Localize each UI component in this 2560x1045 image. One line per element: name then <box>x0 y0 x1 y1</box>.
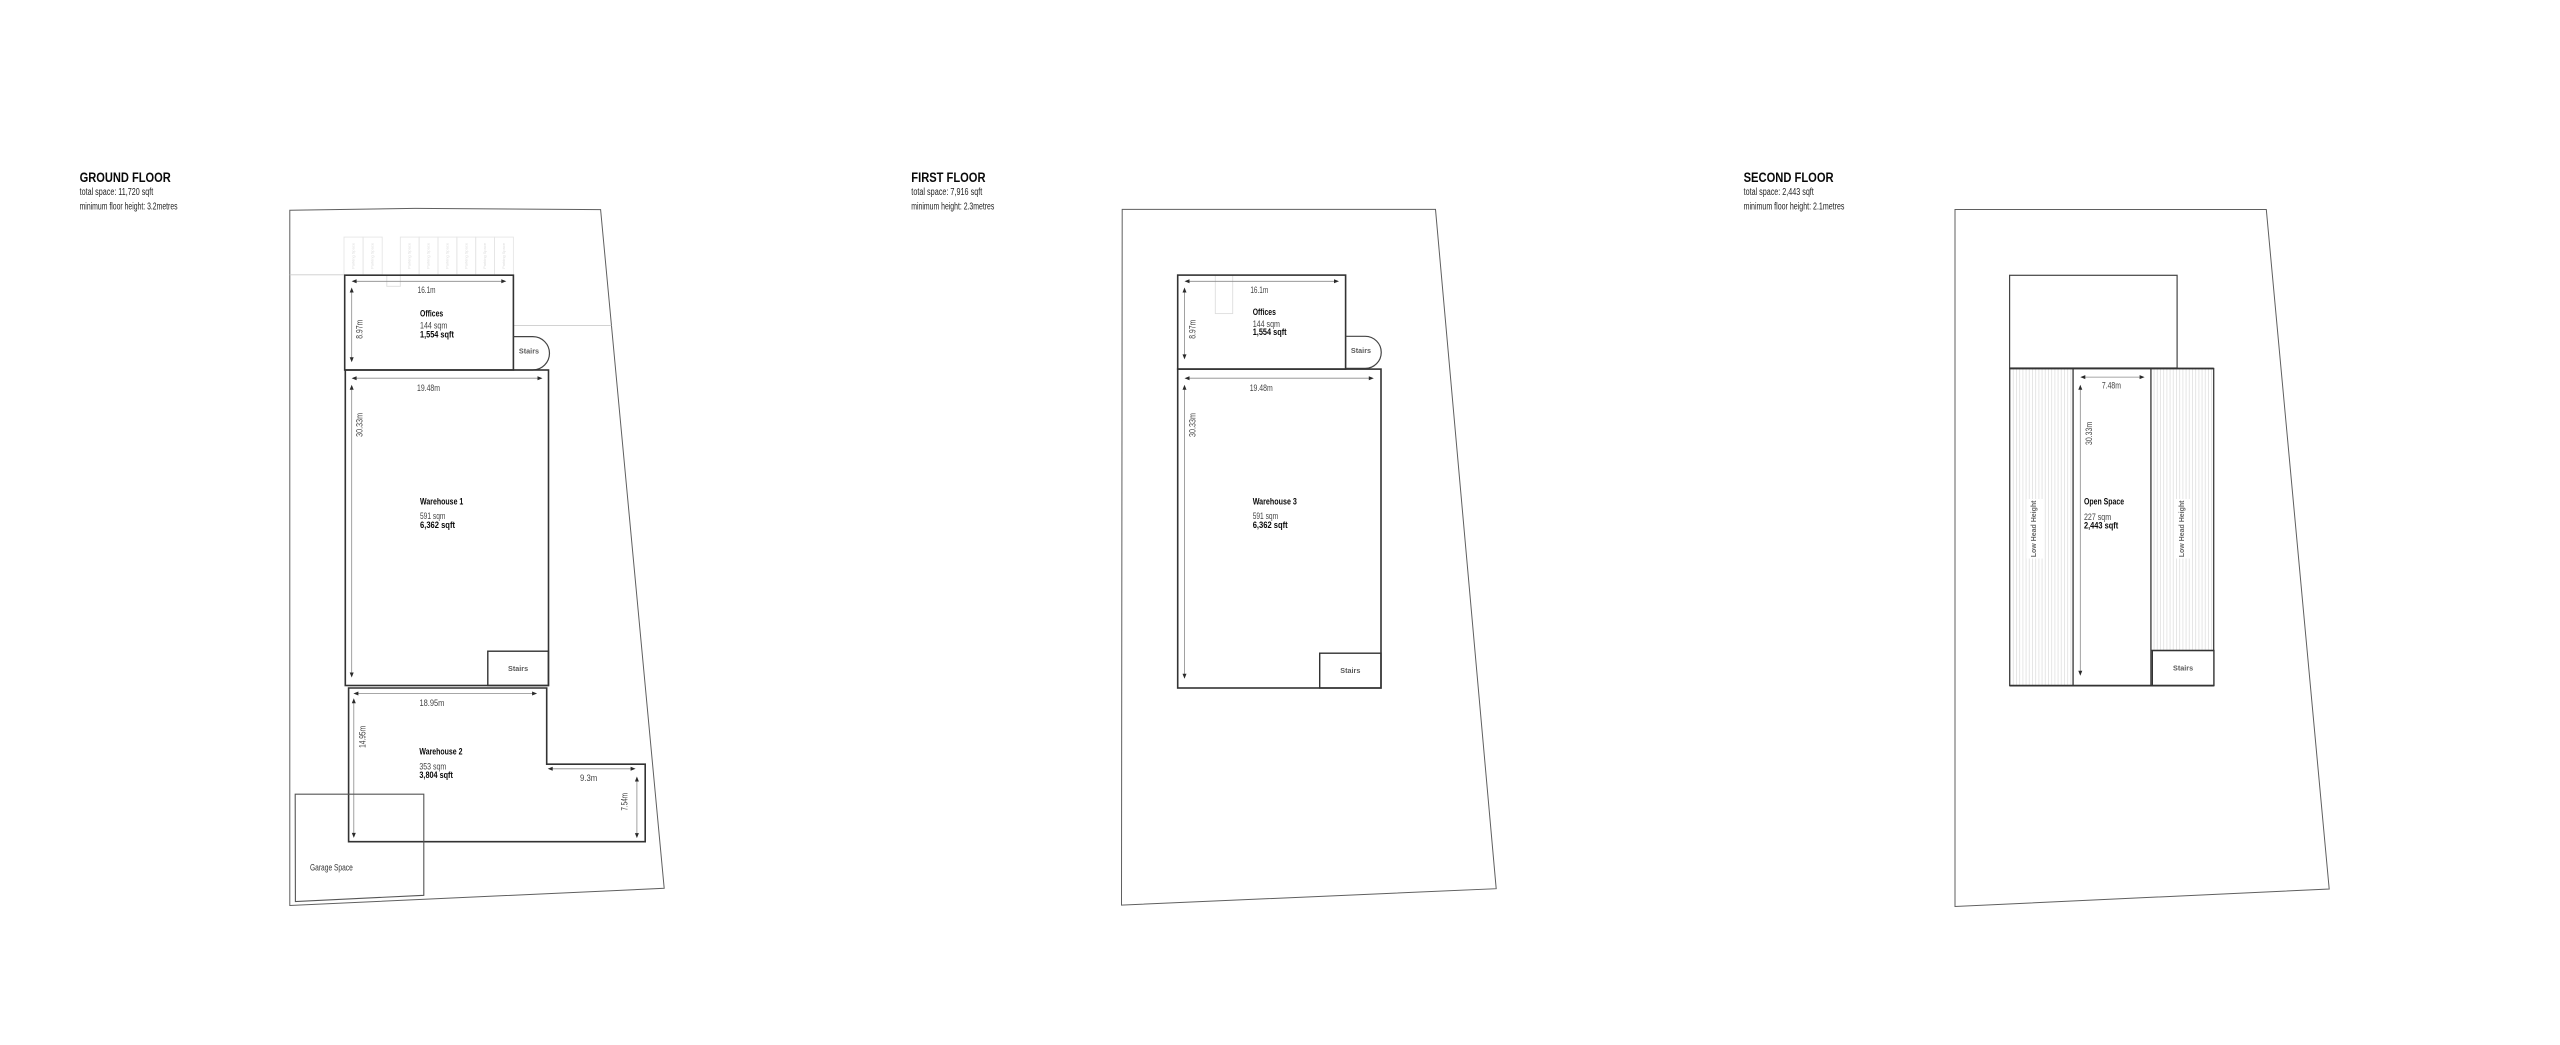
svg-text:Stairs: Stairs <box>2173 664 2193 673</box>
svg-text:7.48m: 7.48m <box>2102 381 2121 391</box>
svg-text:total space: 11,720 sqft: total space: 11,720 sqft <box>80 187 154 198</box>
svg-text:2,443 sqft: 2,443 sqft <box>2084 520 2118 530</box>
svg-text:Warehouse 2: Warehouse 2 <box>419 746 462 756</box>
svg-text:14.95m: 14.95m <box>358 726 368 748</box>
svg-text:1,554 sqft: 1,554 sqft <box>1253 327 1287 337</box>
svg-text:SECOND FLOOR: SECOND FLOOR <box>1744 170 1834 186</box>
svg-text:30.33m: 30.33m <box>1187 413 1197 437</box>
svg-text:16.1m: 16.1m <box>418 285 436 295</box>
svg-text:Low Head Height: Low Head Height <box>2179 500 2186 557</box>
svg-text:minimum floor height: 2.1metre: minimum floor height: 2.1metres <box>1744 201 1845 212</box>
svg-text:Warehouse 1: Warehouse 1 <box>420 497 463 507</box>
svg-text:total space: 7,916 sqft: total space: 7,916 sqft <box>911 187 982 198</box>
svg-text:Stairs: Stairs <box>1340 666 1360 675</box>
svg-text:Parking Space: Parking Space <box>408 243 412 269</box>
svg-text:18.95m: 18.95m <box>419 698 444 708</box>
svg-text:Parking Space: Parking Space <box>483 243 487 269</box>
svg-text:16.1m: 16.1m <box>1250 285 1268 295</box>
svg-text:Open Space: Open Space <box>2084 497 2124 507</box>
svg-text:Parking Space: Parking Space <box>352 243 356 269</box>
svg-text:Garage Space: Garage Space <box>310 863 353 873</box>
svg-text:Parking Space: Parking Space <box>502 243 506 269</box>
svg-text:Offices: Offices <box>1253 307 1276 317</box>
svg-text:minimum floor height: 3.2metre: minimum floor height: 3.2metres <box>80 202 178 213</box>
svg-text:7.54m: 7.54m <box>620 793 630 811</box>
svg-text:19.48m: 19.48m <box>417 383 440 393</box>
svg-text:Stairs: Stairs <box>508 664 528 673</box>
svg-text:Stairs: Stairs <box>519 346 539 355</box>
svg-text:Stairs: Stairs <box>1351 346 1371 355</box>
svg-text:Low Head Height: Low Head Height <box>2031 500 2038 557</box>
svg-text:19.48m: 19.48m <box>1250 383 1273 393</box>
svg-text:Parking Space: Parking Space <box>427 243 431 269</box>
svg-text:minimum height: 2.3metres: minimum height: 2.3metres <box>911 202 994 213</box>
svg-text:30.33m: 30.33m <box>355 413 365 437</box>
svg-text:Offices: Offices <box>420 308 443 318</box>
svg-text:1,554 sqft: 1,554 sqft <box>420 329 454 339</box>
svg-text:30.33m: 30.33m <box>2084 422 2094 445</box>
svg-text:6,362 sqft: 6,362 sqft <box>1253 520 1288 530</box>
svg-text:6,362 sqft: 6,362 sqft <box>420 520 455 530</box>
svg-text:8.97m: 8.97m <box>355 320 365 339</box>
svg-text:Warehouse 3: Warehouse 3 <box>1253 497 1297 507</box>
svg-text:Parking Space: Parking Space <box>464 243 468 269</box>
svg-text:total space: 2,443 sqft: total space: 2,443 sqft <box>1744 187 1814 198</box>
svg-text:Parking Space: Parking Space <box>445 243 449 269</box>
svg-text:Parking Space: Parking Space <box>371 243 375 269</box>
svg-text:FIRST FLOOR: FIRST FLOOR <box>911 170 985 186</box>
svg-text:3,804 sqft: 3,804 sqft <box>419 770 453 780</box>
svg-text:9.3m: 9.3m <box>580 773 597 783</box>
svg-text:8.97m: 8.97m <box>1187 320 1197 339</box>
svg-text:GROUND FLOOR: GROUND FLOOR <box>80 170 171 186</box>
